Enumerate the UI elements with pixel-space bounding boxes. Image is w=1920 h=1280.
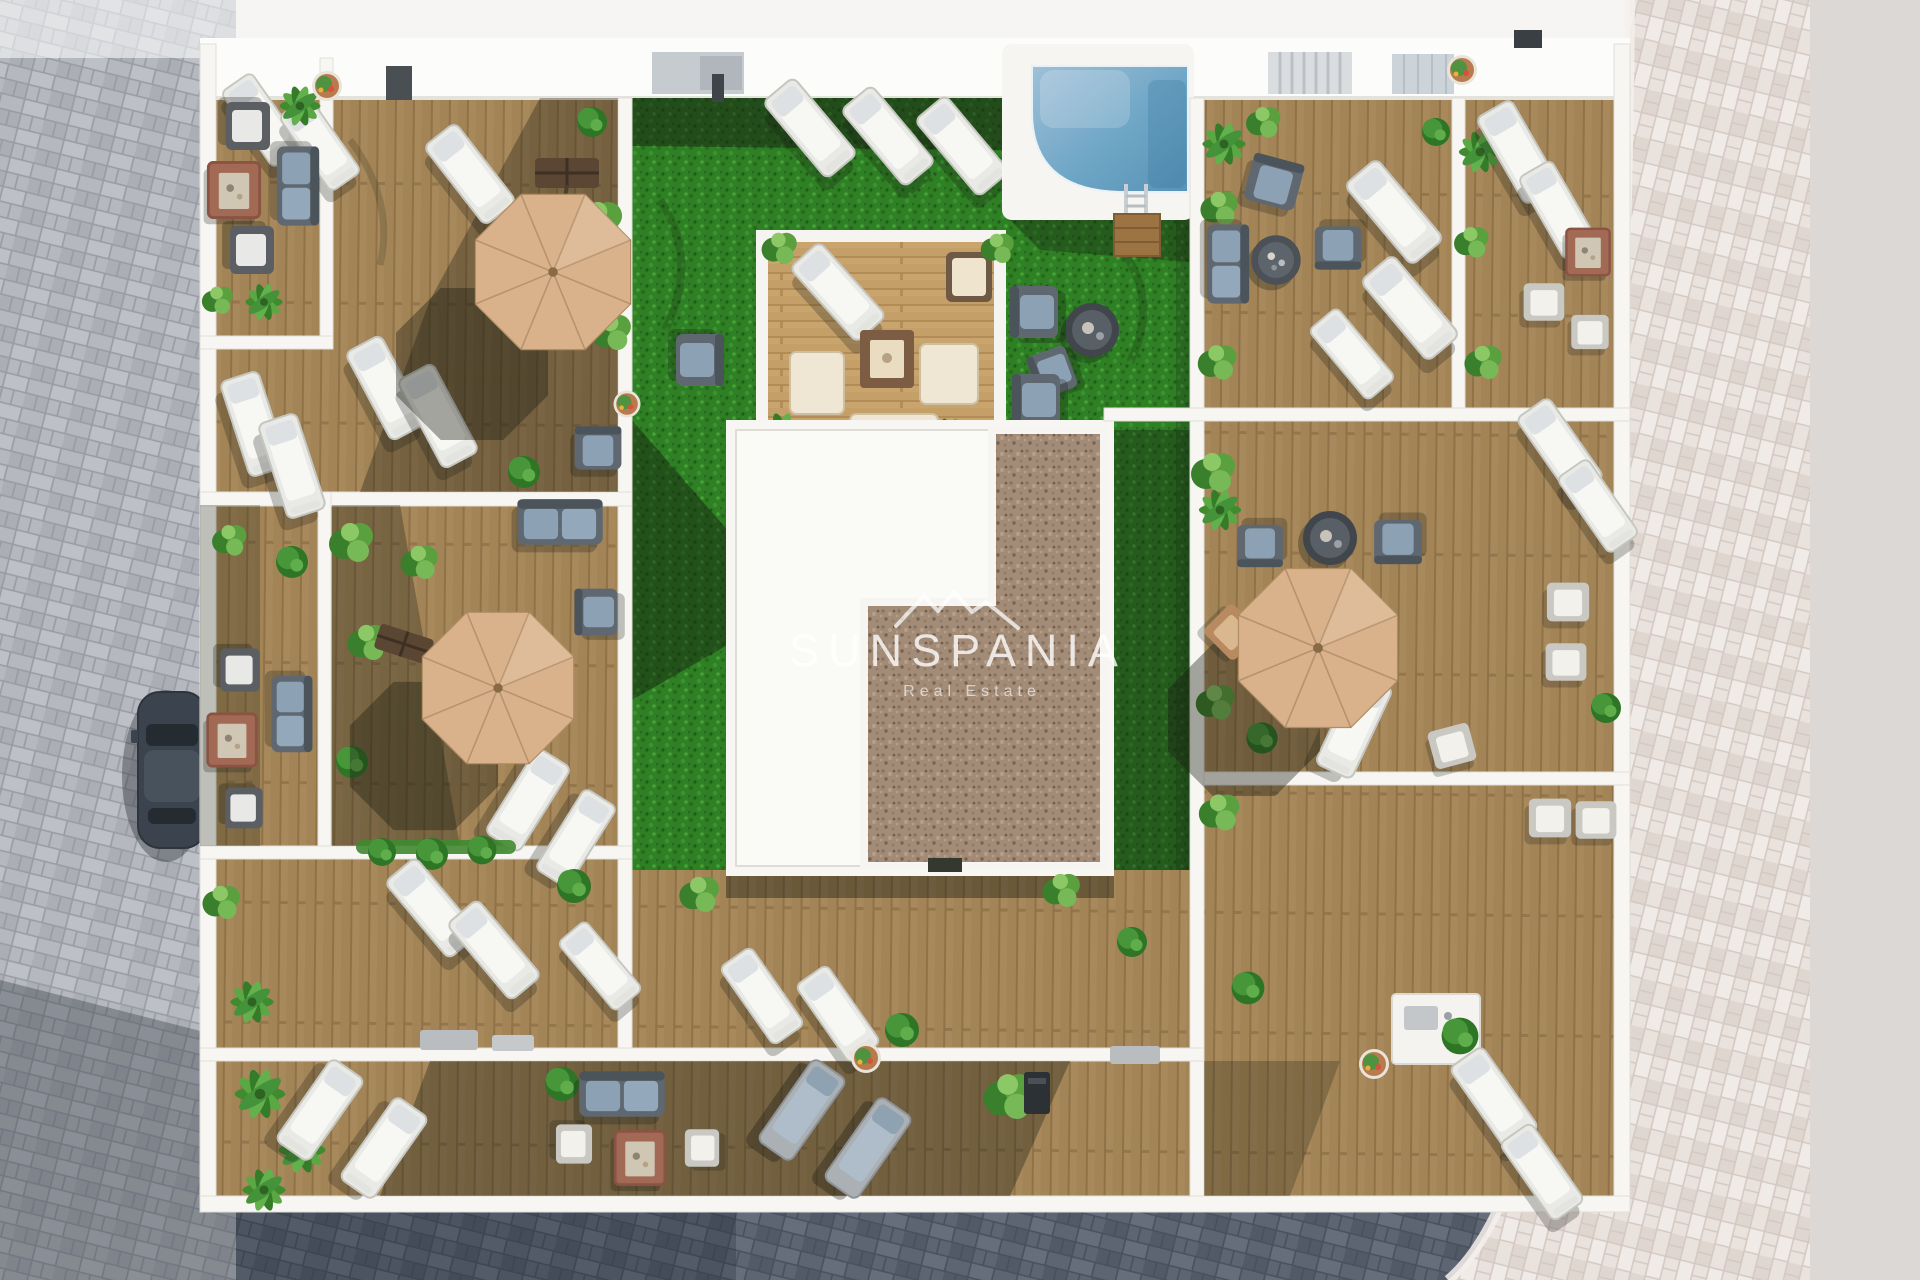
bush xyxy=(1422,118,1450,146)
rooftop: SUNSPANIA Real Estate xyxy=(200,30,1645,1235)
armchair xyxy=(1541,643,1586,687)
bush xyxy=(1442,1018,1479,1055)
cushion-seat xyxy=(790,352,844,414)
bush xyxy=(368,838,396,866)
watermark-tagline: Real Estate xyxy=(903,683,1041,700)
wall xyxy=(1452,98,1465,414)
building-roof: SUNSPANIA Real Estate xyxy=(726,420,1127,898)
wall xyxy=(320,58,333,348)
render-canvas: SUNSPANIA Real Estate xyxy=(0,0,1920,1280)
rooftop-aerial-render: SUNSPANIA Real Estate xyxy=(0,0,1920,1280)
armchair xyxy=(1374,513,1426,565)
armchair xyxy=(549,1120,592,1163)
pergola-slats xyxy=(1268,52,1352,94)
bush xyxy=(1117,927,1147,957)
armchair xyxy=(685,1129,726,1170)
lawn-light-post xyxy=(712,74,724,102)
utility-box xyxy=(1110,1046,1160,1064)
car-windshield xyxy=(146,724,198,746)
fire-pit-table xyxy=(1562,229,1609,281)
fire-pit-table xyxy=(204,162,260,224)
armchair xyxy=(574,589,624,640)
bush xyxy=(557,869,591,903)
armchair xyxy=(1315,219,1366,269)
street-shadow xyxy=(236,1212,736,1280)
roof-vent xyxy=(1514,30,1542,48)
sink xyxy=(1404,1006,1438,1030)
armchair xyxy=(1519,283,1564,327)
faucet xyxy=(1444,1012,1452,1020)
wall xyxy=(1614,44,1630,1212)
car xyxy=(122,690,213,862)
glass-balustrade xyxy=(1392,54,1454,94)
armchair xyxy=(219,783,263,828)
bush xyxy=(1591,693,1621,723)
fire-pit-table xyxy=(611,1131,665,1191)
pool-steps xyxy=(1114,214,1160,256)
armchair xyxy=(1542,583,1589,629)
wall xyxy=(200,336,333,349)
armchair xyxy=(1524,799,1571,845)
lounge-seat xyxy=(946,252,992,302)
sidewalk-flat xyxy=(1806,0,1920,1280)
flower-pot xyxy=(1359,1049,1389,1079)
car-roof xyxy=(144,750,200,802)
sofa xyxy=(1200,219,1249,303)
street-bottom xyxy=(236,1212,1630,1280)
armchair xyxy=(668,329,724,386)
flower-pot xyxy=(614,391,641,418)
armchair xyxy=(213,644,260,692)
utility-box xyxy=(492,1035,534,1051)
armchair xyxy=(218,97,270,150)
armchair xyxy=(570,426,621,476)
armchair xyxy=(1237,518,1287,567)
wall xyxy=(200,1196,1630,1212)
wall xyxy=(318,492,331,852)
armchair xyxy=(1010,286,1066,343)
armchair xyxy=(222,221,274,274)
armchair xyxy=(1571,801,1616,845)
wall xyxy=(200,1048,1204,1061)
roof-equipment-box xyxy=(386,66,412,100)
armchair xyxy=(1567,315,1608,356)
parasol xyxy=(422,612,573,763)
sofa xyxy=(574,1071,665,1124)
flower-pot xyxy=(312,71,342,101)
roof-access-hatch xyxy=(928,858,962,872)
sofa xyxy=(265,671,313,753)
sofa xyxy=(512,499,603,552)
sofa xyxy=(270,141,319,225)
roof-band-top xyxy=(200,30,1630,100)
flower-pot xyxy=(851,1043,881,1073)
cushion-seat xyxy=(920,344,978,404)
bush xyxy=(1232,972,1265,1005)
fire-pit-table xyxy=(203,714,256,773)
parasol xyxy=(1238,568,1397,727)
utility-box xyxy=(420,1030,478,1050)
bush xyxy=(276,546,308,578)
bush xyxy=(468,836,497,865)
flower-pot xyxy=(1447,55,1477,85)
fire-table xyxy=(860,330,914,388)
grill xyxy=(1024,1072,1050,1114)
bush xyxy=(577,107,607,137)
watermark-brand: SUNSPANIA xyxy=(789,625,1127,676)
parasol-base xyxy=(535,158,599,188)
parasol xyxy=(475,194,630,349)
bush xyxy=(885,1013,919,1047)
bush xyxy=(508,456,540,488)
